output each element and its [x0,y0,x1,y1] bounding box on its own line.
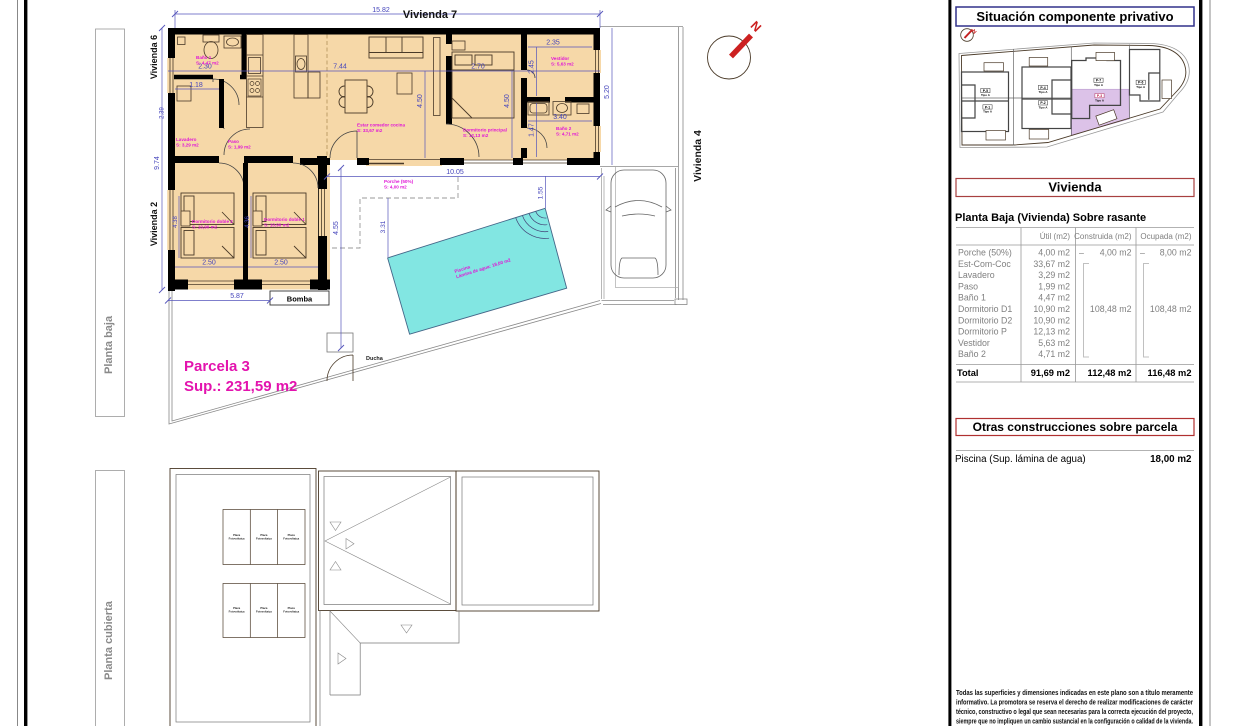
svg-text:Lavadero: Lavadero [958,270,995,280]
svg-text:informativo. La promotora se r: informativo. La promotora se reserva el … [956,700,1193,707]
svg-text:2.39: 2.39 [160,107,166,119]
svg-text:S: 12,13 m2: S: 12,13 m2 [463,133,489,138]
svg-text:S: 4,47 m2: S: 4,47 m2 [196,61,219,66]
svg-text:S: 1,99 m2: S: 1,99 m2 [228,145,251,150]
svg-text:Todas las superficies y dimens: Todas las superficies y dimensiones indi… [956,690,1193,697]
svg-text:5.20: 5.20 [604,85,611,99]
svg-text:Otras construcciones sobre par: Otras construcciones sobre parcela [973,420,1178,434]
svg-text:Lavadero: Lavadero [176,137,197,142]
svg-text:Fotovoltaica: Fotovoltaica [283,536,299,540]
svg-text:Tipo A: Tipo A [983,110,993,114]
svg-text:3,29 m2: 3,29 m2 [1038,270,1070,280]
svg-text:4.50: 4.50 [504,94,511,108]
svg-text:Vivienda: Vivienda [1048,180,1102,195]
svg-text:2.45: 2.45 [529,60,536,74]
svg-text:Ocupada (m2): Ocupada (m2) [1140,232,1191,241]
svg-text:Baño 2: Baño 2 [556,126,572,131]
svg-text:1.47: 1.47 [529,123,536,137]
svg-text:Vivienda 6: Vivienda 6 [149,35,159,79]
svg-text:4.50: 4.50 [417,94,424,108]
svg-text:15.82: 15.82 [372,7,390,14]
svg-text:Tipo A: Tipo A [1094,83,1104,87]
svg-text:4.38: 4.38 [173,216,179,228]
svg-text:Placa: Placa [233,606,241,610]
svg-text:Planta Baja (Vivienda) Sobre r: Planta Baja (Vivienda) Sobre rasante [955,212,1146,224]
svg-text:10.05: 10.05 [446,169,464,176]
svg-text:Dormitorio P: Dormitorio P [958,327,1007,337]
svg-text:Piscina (Sup. lámina de agua): Piscina (Sup. lámina de agua) [955,454,1086,465]
svg-text:Construida (m2): Construida (m2) [1074,232,1132,241]
svg-text:Baño 1: Baño 1 [958,293,986,303]
svg-text:Dormitorio principal: Dormitorio principal [463,128,507,133]
svg-text:Bomba: Bomba [287,295,313,304]
svg-text:Dormitorio doble 1: Dormitorio doble 1 [264,217,305,222]
svg-text:Paso: Paso [228,139,239,144]
svg-text:Dormitorio doble 2: Dormitorio doble 2 [192,219,233,224]
svg-text:Vivienda 4: Vivienda 4 [692,130,704,182]
svg-text:–: – [1140,248,1145,258]
svg-text:4,00 m2: 4,00 m2 [1038,248,1070,258]
svg-text:4,47 m2: 4,47 m2 [1038,293,1070,303]
svg-text:Tipo A: Tipo A [1039,106,1049,110]
svg-text:108,48 m2: 108,48 m2 [1090,304,1132,314]
svg-text:1.55: 1.55 [538,186,545,199]
svg-text:Útil (m2): Útil (m2) [1040,232,1071,241]
svg-text:5,63 m2: 5,63 m2 [1038,338,1070,348]
svg-text:116,48 m2: 116,48 m2 [1148,368,1192,378]
svg-text:Planta cubierta: Planta cubierta [103,600,115,680]
svg-text:Placa: Placa [233,533,241,537]
svg-text:108,48 m2: 108,48 m2 [1150,304,1192,314]
svg-text:Estar comedor cocina: Estar comedor cocina [357,123,405,128]
svg-text:Vestidor: Vestidor [958,338,990,348]
svg-text:Fotovoltaica: Fotovoltaica [229,536,245,540]
svg-text:S: 10,90 m2: S: 10,90 m2 [264,223,290,228]
svg-text:Placa: Placa [288,606,296,610]
svg-text:18,00 m2: 18,00 m2 [1150,454,1192,465]
svg-text:Placa: Placa [260,606,268,610]
svg-text:9.74: 9.74 [154,156,161,170]
svg-text:Vivienda 2: Vivienda 2 [149,202,159,246]
svg-text:Planta baja: Planta baja [103,315,115,374]
svg-text:Porche (50%): Porche (50%) [958,248,1012,258]
svg-text:Parcela 3: Parcela 3 [184,358,250,375]
svg-text:4,71 m2: 4,71 m2 [1038,349,1070,359]
svg-text:Tipo A: Tipo A [1095,98,1105,102]
svg-text:S: 10,90 m2: S: 10,90 m2 [192,225,218,230]
svg-text:Fotovoltaica: Fotovoltaica [283,609,299,613]
svg-text:112,48 m2: 112,48 m2 [1088,368,1132,378]
svg-text:Vestidor: Vestidor [551,56,569,61]
svg-text:33,67 m2: 33,67 m2 [1033,259,1070,269]
svg-text:10,90 m2: 10,90 m2 [1033,304,1070,314]
svg-text:Baño 1: Baño 1 [196,55,212,60]
svg-text:siempre que no impliquen un ca: siempre que no impliquen un cambio susta… [956,719,1193,726]
svg-text:Fotovoltaica: Fotovoltaica [256,536,272,540]
svg-text:2.50: 2.50 [274,260,288,267]
svg-text:–: – [1079,248,1084,258]
svg-text:2.35: 2.35 [546,40,560,47]
svg-text:Tipo A: Tipo A [981,93,991,97]
svg-text:S: 3,29 m2: S: 3,29 m2 [176,143,199,148]
svg-text:Placa: Placa [260,533,268,537]
svg-text:2.70: 2.70 [471,64,485,71]
svg-text:Vivienda 7: Vivienda 7 [403,9,457,21]
svg-text:Sup.: 231,59 m2: Sup.: 231,59 m2 [184,378,297,395]
svg-text:Est-Com-Coc: Est-Com-Coc [958,259,1011,269]
svg-text:Dormitorio D1: Dormitorio D1 [958,304,1012,314]
svg-text:Paso: Paso [958,281,978,291]
svg-text:5.87: 5.87 [230,293,244,300]
svg-text:técnico, constructivo o legal: técnico, constructivo o legal que sean n… [956,709,1193,716]
svg-text:Porche (50%): Porche (50%) [384,179,414,184]
svg-text:Baño 2: Baño 2 [958,349,986,359]
svg-text:Fotovoltaica: Fotovoltaica [229,609,245,613]
svg-text:S: 4,00 m2: S: 4,00 m2 [384,185,407,190]
svg-text:Tipo A: Tipo A [1039,90,1049,94]
svg-text:3.31: 3.31 [380,220,387,233]
svg-text:91,69 m2: 91,69 m2 [1031,368,1070,378]
svg-text:10,90 m2: 10,90 m2 [1033,315,1070,325]
svg-text:4.36: 4.36 [245,216,251,228]
svg-text:Dormitorio D2: Dormitorio D2 [958,315,1012,325]
svg-text:3.40: 3.40 [553,114,567,121]
svg-text:S: 33,67 m2: S: 33,67 m2 [357,128,383,133]
svg-text:Total: Total [957,368,979,378]
svg-text:1,99 m2: 1,99 m2 [1038,281,1070,291]
svg-text:Tipo A: Tipo A [1136,85,1146,89]
svg-text:2.50: 2.50 [202,260,216,267]
svg-text:Placa: Placa [288,533,296,537]
svg-text:4,00 m2: 4,00 m2 [1100,248,1132,258]
svg-text:Fotovoltaica: Fotovoltaica [256,609,272,613]
svg-text:8,00 m2: 8,00 m2 [1160,248,1192,258]
svg-text:7.44: 7.44 [333,64,347,71]
svg-text:S: 4,71 m2: S: 4,71 m2 [556,132,579,137]
svg-text:Ducha: Ducha [366,356,384,362]
svg-text:4.55: 4.55 [333,221,340,235]
svg-text:12,13 m2: 12,13 m2 [1033,327,1070,337]
svg-text:S: 5,63 m2: S: 5,63 m2 [551,62,574,67]
svg-text:1.18: 1.18 [189,82,203,89]
svg-text:Situación componente privativo: Situación componente privativo [976,9,1173,24]
